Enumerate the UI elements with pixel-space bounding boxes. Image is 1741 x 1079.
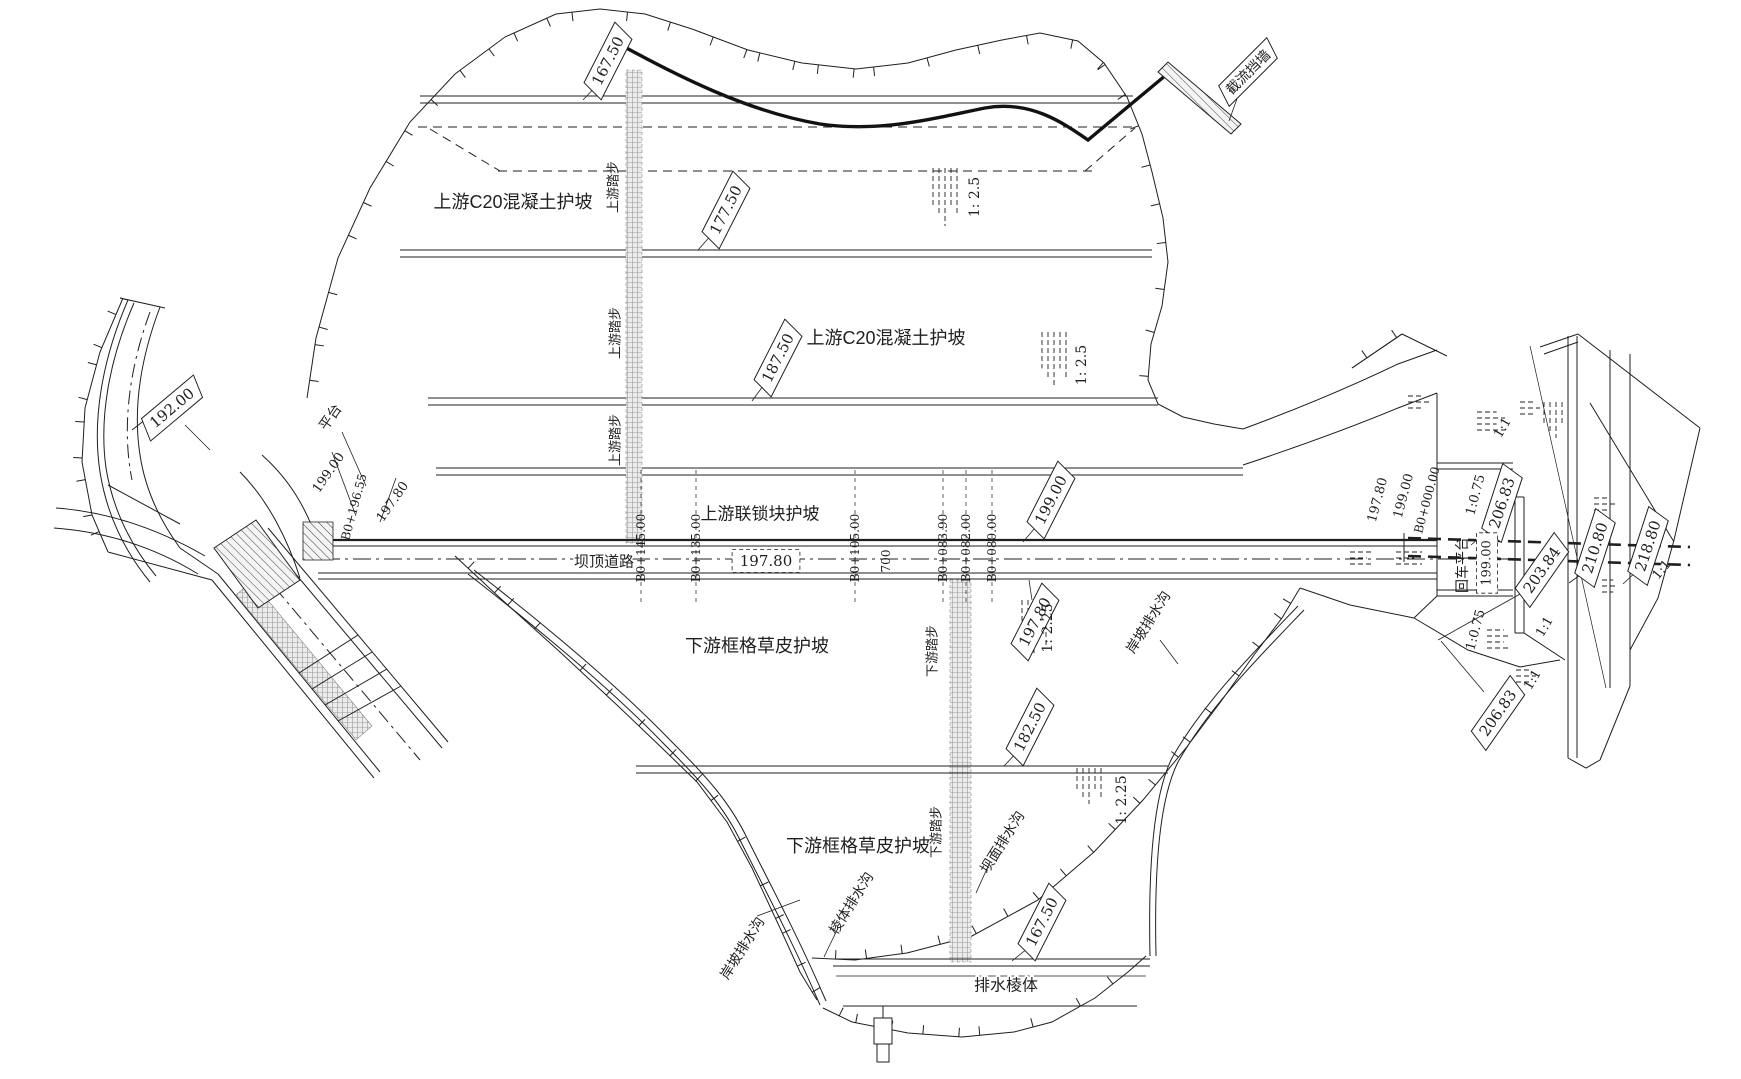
slope-ratio-1-1-b: 1:1 <box>1521 667 1544 693</box>
elev-tag-182-50-text: 182.50 <box>1010 700 1050 755</box>
slope-ratio-1-0-75-b: 1:0.75 <box>1463 608 1488 652</box>
boundary-tick <box>386 161 394 166</box>
dam-plan-svg: 167.50177.50187.50199.00197.80182.50167.… <box>0 0 1741 1079</box>
boundary-tick <box>108 311 116 315</box>
downstream-grid-grass-slope-2-text: 下游框格草皮护坡 <box>786 836 930 856</box>
boundary-tick <box>972 926 976 934</box>
downstream-steps-label-2-text: 下游踏步 <box>929 806 944 858</box>
elev-199-00-right: 199.00 <box>1391 472 1417 520</box>
elev-tag-177-50-text: 177.50 <box>706 183 746 238</box>
slope-ratio-1-0-75-b-text: 1:0.75 <box>1463 608 1488 652</box>
boundary-tick <box>1146 330 1155 333</box>
outlet-pipe <box>877 1044 889 1062</box>
boundary-tick <box>710 37 713 45</box>
boundary-bottom <box>823 956 1146 1037</box>
elev-tag-199-00: 199.00 <box>1024 461 1079 539</box>
upstream-steps-label-3: 上游踏步 <box>608 414 623 466</box>
boundary-tick <box>489 49 494 56</box>
upstream-interlocking-block-slope: 上游联锁块护坡 <box>701 505 820 524</box>
slope-ratio-1-2-25-b-text: 1: 2.25 <box>1114 775 1130 824</box>
platform-label-left: 平台 <box>315 401 344 433</box>
elev-tag-167-50-prism: 167.50 <box>1015 883 1070 961</box>
boundary-tick <box>83 515 92 517</box>
boundary-tick <box>94 344 102 348</box>
boundary-tick <box>1118 94 1125 99</box>
elev-tag-167-50-prism-text: 167.50 <box>1022 895 1062 950</box>
boundary-tick <box>817 65 818 74</box>
elev-tag-199-00-text: 199.00 <box>1031 473 1071 528</box>
boundary-tick <box>865 950 866 959</box>
upstream-c20-concrete-slope-2-text: 上游C20混凝土护坡 <box>806 328 965 348</box>
boundary-tick <box>1060 869 1066 876</box>
boundary-left-arc <box>82 298 123 552</box>
leader-197-80 <box>1029 580 1032 600</box>
platform-elev-box-199-00-text: 199.00 <box>1480 540 1495 586</box>
right-bank-drain-2 <box>1156 610 1304 956</box>
boundary-tick <box>310 380 319 381</box>
boundary-tick <box>839 1008 843 1016</box>
boundary-tick <box>315 345 324 346</box>
elev-tag-206-83-lower: 206.83 <box>1467 676 1529 751</box>
downstream-grid-grass-slope-1-text: 下游框格草皮护坡 <box>685 636 829 656</box>
slope-ratio-1-1-a-text: 1:1 <box>1491 415 1514 441</box>
boundary-tick <box>88 363 97 365</box>
boundary-tick <box>1148 779 1155 785</box>
kite-top-cap <box>1540 334 1578 354</box>
elev-199-00-left: 199.00 <box>310 450 348 496</box>
dam-crest-road-label-text: 坝顶道路 <box>574 554 634 571</box>
elev-tag-206-83-upper: 206.83 <box>1479 464 1524 543</box>
slope-ratio-1-2-25-a: 1: 2.25 <box>1040 603 1056 652</box>
heavy-road-line <box>612 40 1172 140</box>
boundary-tick <box>901 945 902 954</box>
upstream-steps-label-1: 上游踏步 <box>606 161 621 213</box>
boundary-tick <box>1141 165 1150 167</box>
leader-bank-drain-left <box>757 900 800 916</box>
boundary-tick <box>1027 35 1029 44</box>
station-b0-083-90: B0+083.90 <box>936 514 950 583</box>
slope-ratio-1-2-5-b: 1: 2.5 <box>1074 345 1090 385</box>
downstream-grid-grass-slope-2: 下游框格草皮护坡 <box>786 836 930 856</box>
boundary-tick <box>76 480 85 482</box>
station-b0-105-00-text: B0+105.00 <box>848 514 862 583</box>
slope-ratio-1-2-25-b: 1: 2.25 <box>1114 775 1130 824</box>
boundary-tick <box>938 936 940 945</box>
boundary-tick <box>460 70 465 77</box>
boundary-tick <box>1088 846 1094 853</box>
boundary-tick <box>1392 330 1397 337</box>
boundary-tick <box>1107 977 1113 984</box>
station-b0-000-00: B0+000.00 <box>1411 465 1442 535</box>
drainage-prism-label-text: 排水棱体 <box>974 977 1038 995</box>
upstream-steps-label-2: 上游踏步 <box>608 307 623 359</box>
outlet-box <box>874 1018 892 1044</box>
road-junction-hatch <box>303 522 333 560</box>
dam-face-drain-label: 坝面排水沟 <box>977 808 1028 876</box>
chute-sw-edge <box>212 574 380 778</box>
station-b0-145-00-text: B0+145.00 <box>634 514 648 583</box>
upper-wing-edge-2 <box>1243 393 1437 465</box>
slope-ratio-1-0-75-a: 1:0.75 <box>1463 473 1488 517</box>
berm-177-50-line <box>400 250 1152 257</box>
boundary-tick <box>1151 204 1160 206</box>
boundary-tick <box>319 327 328 329</box>
elev-199-00-right-text: 199.00 <box>1391 472 1417 520</box>
platform-label-left-text: 平台 <box>315 401 344 433</box>
boundary-tick <box>668 22 671 31</box>
boundary-tick <box>853 69 854 78</box>
elev-tag-187-50: 187.50 <box>751 319 806 397</box>
elev-tag-167-50-upstream-text: 167.50 <box>588 34 628 89</box>
boundary-tick <box>1004 908 1008 916</box>
downstream-area <box>468 570 1304 1062</box>
upstream-berms <box>400 96 1243 475</box>
station-b0-080-00-text: B0+080.00 <box>985 514 999 583</box>
slope-ratio-1-2-5-b-text: 1: 2.5 <box>1074 345 1090 385</box>
station-b0-135-00: B0+135.00 <box>689 514 703 583</box>
boundary-tick <box>1155 288 1164 289</box>
boundary-tick <box>329 292 338 294</box>
approach-channel <box>54 508 205 574</box>
downstream-grid-grass-slope-1: 下游框格草皮护坡 <box>685 636 829 656</box>
lower-wing-edges <box>1300 588 1560 667</box>
right-abutment <box>1243 334 1700 768</box>
leader-bank-drain-right <box>1160 640 1178 664</box>
fan-outer-arc-1 <box>97 300 150 582</box>
boundary-tick <box>363 202 371 206</box>
upstream-c20-concrete-slope-1: 上游C20混凝土护坡 <box>433 192 592 212</box>
berm-182-50-line <box>636 766 1168 773</box>
right-bank-drain-1 <box>1150 606 1298 956</box>
prism-top-line <box>833 959 1150 966</box>
downstream-steps-label-2: 下游踏步 <box>929 806 944 858</box>
dam-face-drain-label-text: 坝面排水沟 <box>977 808 1028 876</box>
leader-192-00 <box>185 425 210 450</box>
turnaround-platform-label-text: 回车平台 <box>1454 537 1470 593</box>
station-b0-083-90-text: B0+083.90 <box>936 514 950 583</box>
spillway-complex <box>54 298 448 778</box>
turnaround-platform-label: 回车平台 <box>1454 537 1470 593</box>
upstream-c20-concrete-slope-2: 上游C20混凝土护坡 <box>806 328 965 348</box>
boundary-tick <box>547 18 551 26</box>
upstream-steps-label-3-text: 上游踏步 <box>608 414 623 466</box>
road-downstream-edge <box>318 573 1437 579</box>
bank-slope-drain-label-left: 岸坡排水沟 <box>717 914 768 982</box>
upstream-steps-label-2-text: 上游踏步 <box>608 307 623 359</box>
crest-elev-box-197-80: 197.80 <box>732 550 800 573</box>
station-b0-082-00: B0+082.00 <box>959 514 973 583</box>
bank-slope-drain-label-right-text: 岸坡排水沟 <box>1123 588 1174 656</box>
elev-tag-182-50: 182.50 <box>1003 688 1058 766</box>
kite-right-edges <box>1578 334 1700 650</box>
boundary-tick <box>1157 243 1166 244</box>
bank-slope-drain-label-right: 岸坡排水沟 <box>1123 588 1174 656</box>
dim-700-text: 700 <box>879 550 893 573</box>
platform-elev-box-199-00: 199.00 <box>1477 533 1498 593</box>
berm-199-00-line <box>436 468 1243 475</box>
station-b0-082-00-text: B0+082.00 <box>959 514 973 583</box>
berm-167-50-line <box>420 96 1133 103</box>
dam-crest-road <box>240 455 1510 604</box>
downstream-steps-strip <box>950 580 971 962</box>
boundary-tick <box>923 1025 924 1034</box>
berm-187-50-line <box>428 398 1158 405</box>
boundary-tick <box>514 33 518 41</box>
elev-tag-177-50: 177.50 <box>699 171 754 249</box>
top-heavy-line <box>612 40 1241 140</box>
boundary-tick <box>856 1014 858 1023</box>
boundary-tick <box>874 67 875 76</box>
station-b0-145-00: B0+145.00 <box>634 514 648 583</box>
boundary-lower-left <box>455 556 817 1000</box>
station-b0-000-00-text: B0+000.00 <box>1411 465 1442 535</box>
station-b0-080-00: B0+080.00 <box>985 514 999 583</box>
slope-ratio-1-0-75-a-text: 1:0.75 <box>1463 473 1488 517</box>
elev-tag-210-80: 210.80 <box>1572 509 1617 588</box>
boundary-ticks <box>73 12 1396 1037</box>
prism-drain-label: 棱体排水沟 <box>826 869 877 937</box>
upstream-interlocking-block-slope-text: 上游联锁块护坡 <box>701 505 820 524</box>
upstream-steps-label-1-text: 上游踏步 <box>606 161 621 213</box>
upstream-c20-concrete-slope-1-text: 上游C20混凝土护坡 <box>433 192 592 212</box>
elev-tag-203-84: 203.84 <box>1511 533 1573 608</box>
elev-199-00-left-text: 199.00 <box>310 450 348 496</box>
boundary-tick <box>1133 797 1140 803</box>
labels-layer: 167.50177.50187.50199.00197.80182.50167.… <box>136 22 1675 994</box>
slope-ratio-1-2-5-a: 1: 2.5 <box>967 177 983 217</box>
drainage-prism-label: 排水棱体 <box>974 977 1038 995</box>
boundary-tick <box>927 58 929 67</box>
boundary-tick <box>572 12 573 21</box>
slope-ratio-1-2-25-a-text: 1: 2.25 <box>1040 603 1056 652</box>
boundary-tick <box>348 235 356 239</box>
boundary-tick <box>979 1026 980 1035</box>
dam-crest-road-label: 坝顶道路 <box>574 554 634 571</box>
boundary-tick <box>978 45 980 54</box>
boundary-tick <box>468 562 474 569</box>
station-b0-105-00: B0+105.00 <box>848 514 862 583</box>
slope-ratio-1-1-a: 1:1 <box>1491 415 1514 441</box>
upstream-steps-strip <box>626 70 642 543</box>
boundary-tick <box>959 1028 960 1037</box>
bank-slope-drain-label-left-text: 岸坡排水沟 <box>717 914 768 982</box>
elev-tag-187-50-text: 187.50 <box>758 331 798 386</box>
boundary-tick <box>793 61 795 70</box>
downstream-steps-label-1: 下游踏步 <box>925 625 940 677</box>
cofferdam-dashed-ends <box>430 128 1135 171</box>
upper-wing-edge-1 <box>1243 350 1437 429</box>
boundary-tick <box>1033 892 1039 899</box>
boundary-tick <box>627 12 628 21</box>
crest-elev-box-197-80-text: 197.80 <box>740 552 793 570</box>
boundary-tick <box>1031 1018 1033 1027</box>
boundary-tick <box>1076 998 1080 1006</box>
boundary-tick <box>1071 40 1073 49</box>
gate-block-hatch <box>214 520 300 608</box>
downstream-steps-label-1-text: 下游踏步 <box>925 625 940 677</box>
slope-ratio-1-1-d: 1:1 <box>1533 614 1556 640</box>
slope-ratio-1-2-5-a-text: 1: 2.5 <box>967 177 983 217</box>
boundary-tick <box>758 53 760 62</box>
drawing-canvas: 167.50177.50187.50199.00197.80182.50167.… <box>0 0 1741 1079</box>
boundary-tick <box>405 131 413 136</box>
elev-197-80-right: 197.80 <box>1365 476 1391 524</box>
closure-wall-tag: 截流挡墙 <box>1214 38 1283 107</box>
boundary-tick <box>79 397 88 399</box>
elev-197-80-right-text: 197.80 <box>1365 476 1391 524</box>
left-bank-drain-2 <box>474 570 826 1001</box>
boundary-tick <box>1283 599 1291 604</box>
station-b0-135-00-text: B0+135.00 <box>689 514 703 583</box>
prism-drain-label-text: 棱体排水沟 <box>826 869 877 937</box>
elev-tag-192-00: 192.00 <box>136 375 208 441</box>
boundary-tick <box>1362 350 1367 357</box>
dim-700: 700 <box>879 550 893 573</box>
boundary-tick <box>1274 613 1281 618</box>
slope-ratio-1-1-d-text: 1:1 <box>1533 614 1556 640</box>
boundary-tick <box>744 50 747 58</box>
boundary-tick <box>1139 376 1148 377</box>
slope-ratio-1-1-b-text: 1:1 <box>1521 667 1544 693</box>
closure-wall-tag-text: 截流挡墙 <box>1223 47 1274 98</box>
